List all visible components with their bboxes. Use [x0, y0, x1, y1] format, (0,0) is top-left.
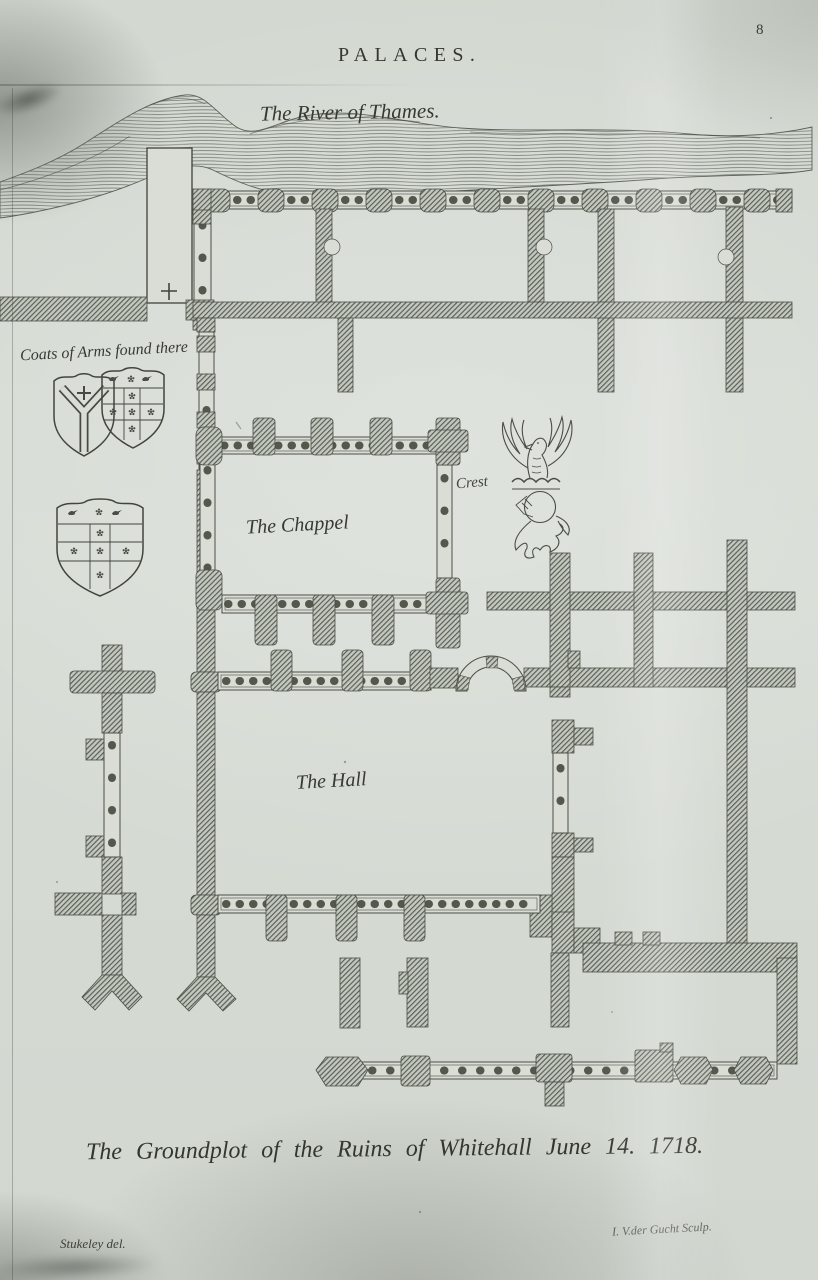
shield-cross-roses	[102, 368, 164, 448]
groundplot-drawing	[0, 0, 818, 1280]
south-colonnade	[316, 1043, 777, 1106]
mid-colonnade	[218, 650, 795, 691]
west-corridor-wall	[55, 645, 155, 1010]
page-title: PALACES.	[338, 44, 481, 67]
cross-range-wall	[0, 297, 792, 321]
shield-cross-roses-large	[57, 499, 143, 596]
hall-label: The Hall	[295, 768, 367, 795]
south-east-range	[583, 932, 797, 1064]
river-gallery-range	[0, 189, 792, 392]
credit-delineator: Stukeley del.	[60, 1236, 126, 1252]
river-label: The River of Thames.	[260, 98, 440, 126]
page-number: 8	[756, 22, 764, 39]
shield-pall	[54, 374, 114, 456]
crest-label: Crest	[455, 474, 488, 494]
ruin-piers	[340, 953, 569, 1028]
engraved-plate: 8 PALACES. The River of Thames. Coats of…	[0, 0, 818, 1280]
hall-room	[218, 720, 600, 953]
crest-drawing	[502, 417, 571, 558]
coats-of-arms	[54, 368, 164, 596]
stairs-tower	[147, 148, 192, 303]
east-corridor-grid	[487, 540, 795, 952]
